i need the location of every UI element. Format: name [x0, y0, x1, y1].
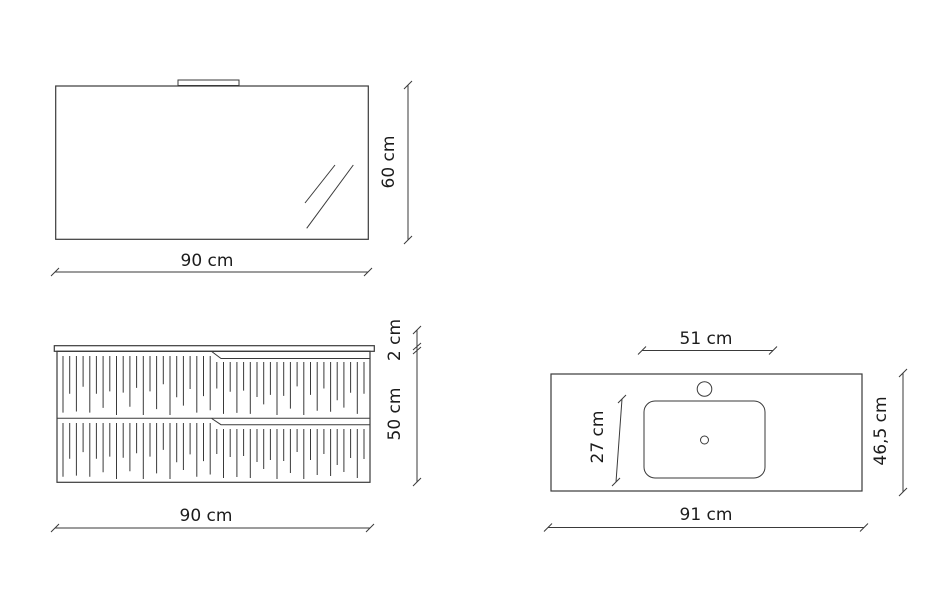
basin-width-dimension: 51 cm: [638, 329, 777, 355]
cabinet-front-view: 2 cm 50 cm 90 cm: [51, 319, 421, 532]
bottom-drawer-fluted-front: [63, 423, 364, 479]
faucet-hole: [697, 382, 712, 397]
dimension-label-height: 50 cm: [385, 388, 405, 441]
bottom-drawer-handle-groove: [212, 419, 370, 425]
mirror-reflection-line-1: [305, 165, 335, 203]
technical-drawing-canvas: 60 cm 90 cm 2 cm 50 cm: [0, 0, 942, 616]
dimension-label: 60 cm: [379, 136, 399, 189]
basin-depth-dimension: 27 cm: [588, 395, 626, 486]
countertop-width-dimension: 91 cm: [544, 505, 868, 532]
dimension-label: 91 cm: [680, 505, 733, 525]
dimension-line: [612, 395, 626, 486]
dimension-line: [404, 81, 412, 244]
technical-drawing-page: 60 cm 90 cm 2 cm 50 cm: [0, 0, 942, 616]
dimension-label: 27 cm: [588, 411, 608, 464]
dimension-label: 90 cm: [181, 251, 234, 271]
mirror-outline: [56, 86, 369, 239]
dimension-line: [413, 326, 421, 486]
dimension-label: 90 cm: [180, 506, 233, 526]
cabinet-width-dimension: 90 cm: [51, 506, 374, 532]
cabinet-body: [57, 351, 370, 482]
flutes-top-lines: [63, 356, 364, 415]
dimension-label: 46,5 cm: [871, 396, 891, 465]
dimension-label-top-thickness: 2 cm: [385, 319, 405, 361]
countertop-depth-dimension: 46,5 cm: [871, 369, 907, 496]
flutes-bottom-lines: [63, 423, 364, 479]
cabinet-top-panel: [54, 346, 374, 352]
mirror-light-bar: [178, 80, 239, 86]
mirror-height-dimension: 60 cm: [379, 81, 412, 244]
mirror-front-view: 60 cm 90 cm: [51, 80, 412, 276]
top-drawer-handle-groove: [212, 352, 370, 359]
top-drawer-fluted-front: [63, 356, 364, 415]
basin-outline: [644, 401, 765, 478]
dimension-line: [899, 369, 907, 496]
mirror-width-dimension: 90 cm: [51, 251, 372, 276]
dimension-label: 51 cm: [680, 329, 733, 349]
cabinet-height-dimension: 2 cm 50 cm: [385, 319, 421, 486]
washbasin-top-view: 51 cm 27 cm 46,5 cm 91 cm: [544, 329, 907, 532]
drain-hole: [701, 436, 709, 444]
mirror-reflection-line-2: [307, 165, 354, 228]
